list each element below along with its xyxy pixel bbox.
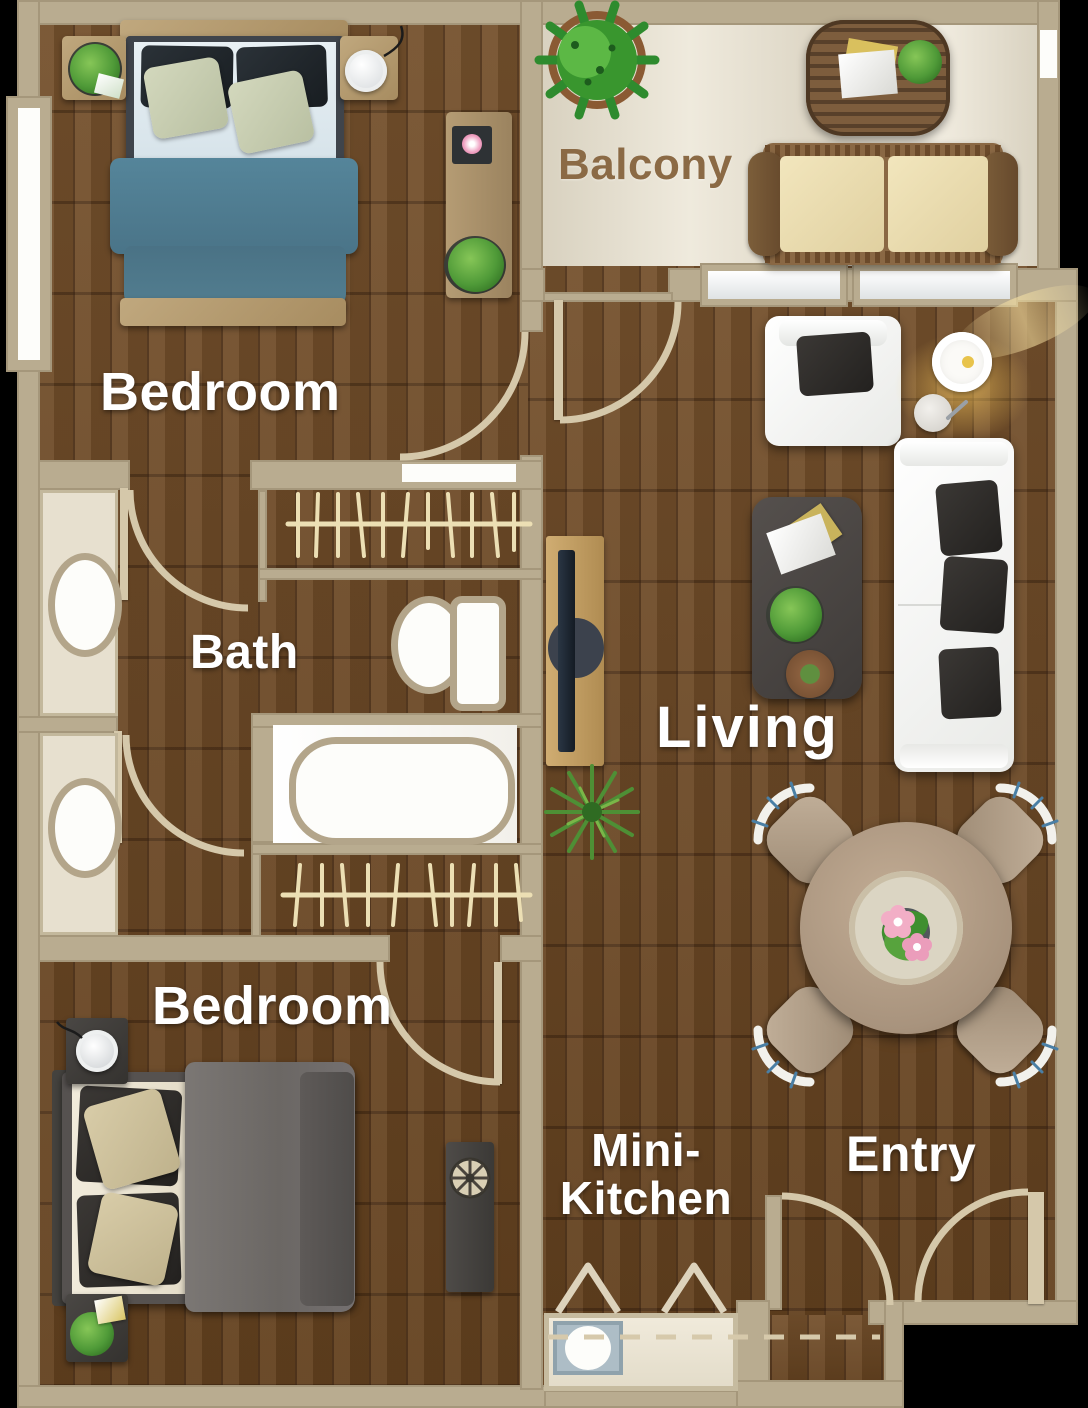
flower-centerpiece-icon: [877, 905, 933, 967]
room-label-living: Living: [656, 698, 839, 759]
closet-hanger-icon: [288, 494, 530, 556]
spiky-plant-icon: [546, 766, 638, 858]
room-label-entry: Entry: [846, 1128, 976, 1181]
room-label-bedroom-top: Bedroom: [100, 364, 341, 421]
balcony-plant-icon: [539, 5, 655, 115]
closet-hanger-icon: [283, 865, 530, 925]
room-label-bath: Bath: [190, 628, 299, 678]
room-label-balcony: Balcony: [558, 142, 733, 188]
floor-plan: Bedroom Balcony Bath Living Bedroom Mini…: [0, 0, 1088, 1408]
power-cord: [57, 26, 402, 1038]
cabinet-fold-door-icon: [558, 1266, 724, 1312]
room-label-bedroom-bottom: Bedroom: [152, 978, 393, 1035]
room-label-mini-kitchen: Mini- Kitchen: [518, 1126, 774, 1223]
lamp-needle: [948, 402, 966, 418]
rosette-fan-icon: [451, 1159, 489, 1197]
